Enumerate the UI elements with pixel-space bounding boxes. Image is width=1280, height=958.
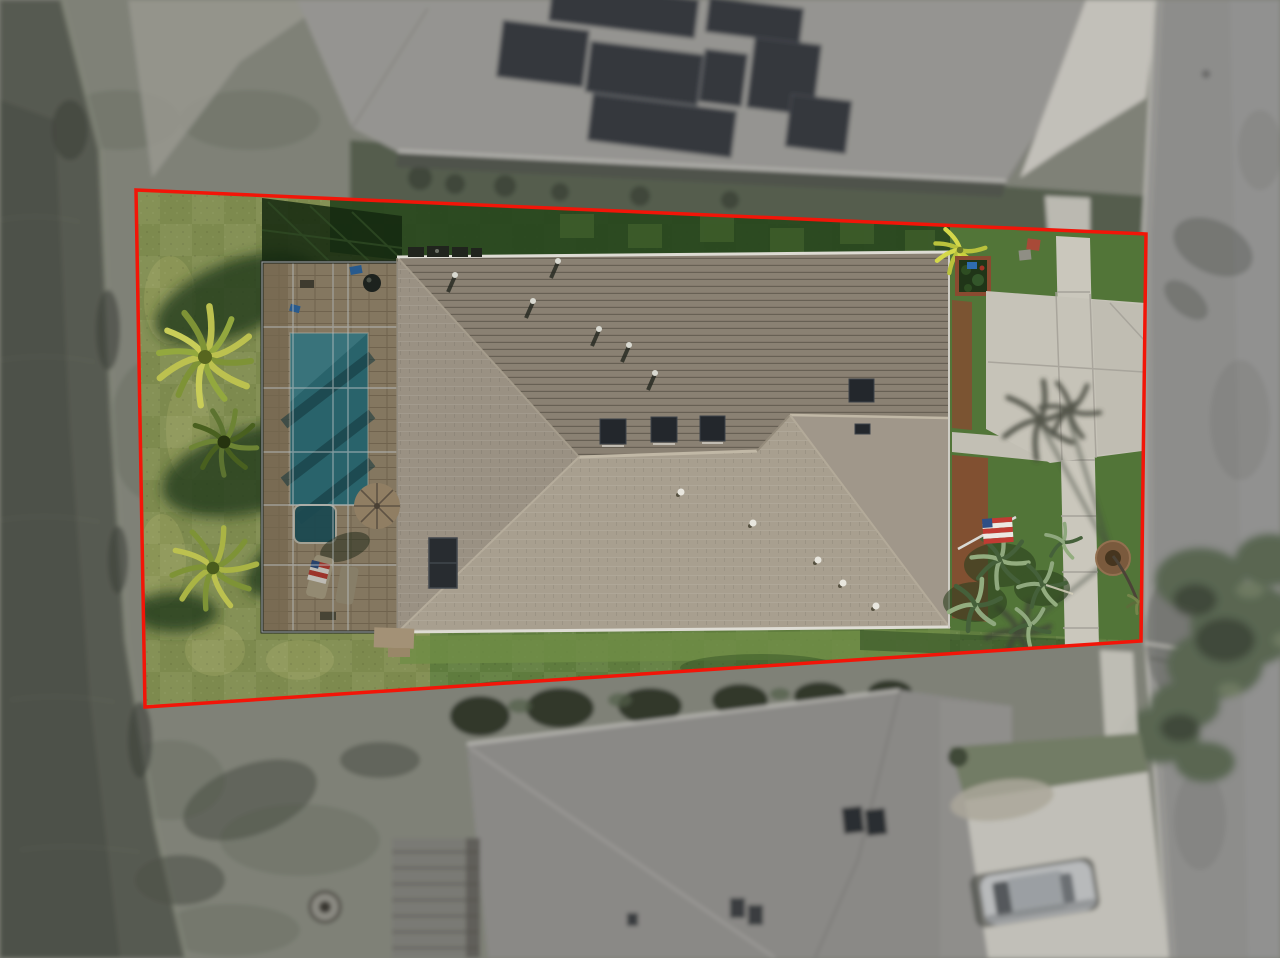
mulch-bed-upper [952, 300, 972, 430]
driveway-apron [1092, 300, 1146, 455]
aerial-photo [0, 0, 1280, 958]
fire-pit [310, 892, 340, 922]
pool-enclosure [262, 262, 398, 632]
garden-planter [957, 258, 989, 294]
street-manhole [1202, 70, 1211, 79]
patio-umbrella [354, 483, 400, 529]
shrub [948, 747, 968, 767]
pergola [392, 838, 480, 958]
main-house-roof [397, 252, 950, 632]
